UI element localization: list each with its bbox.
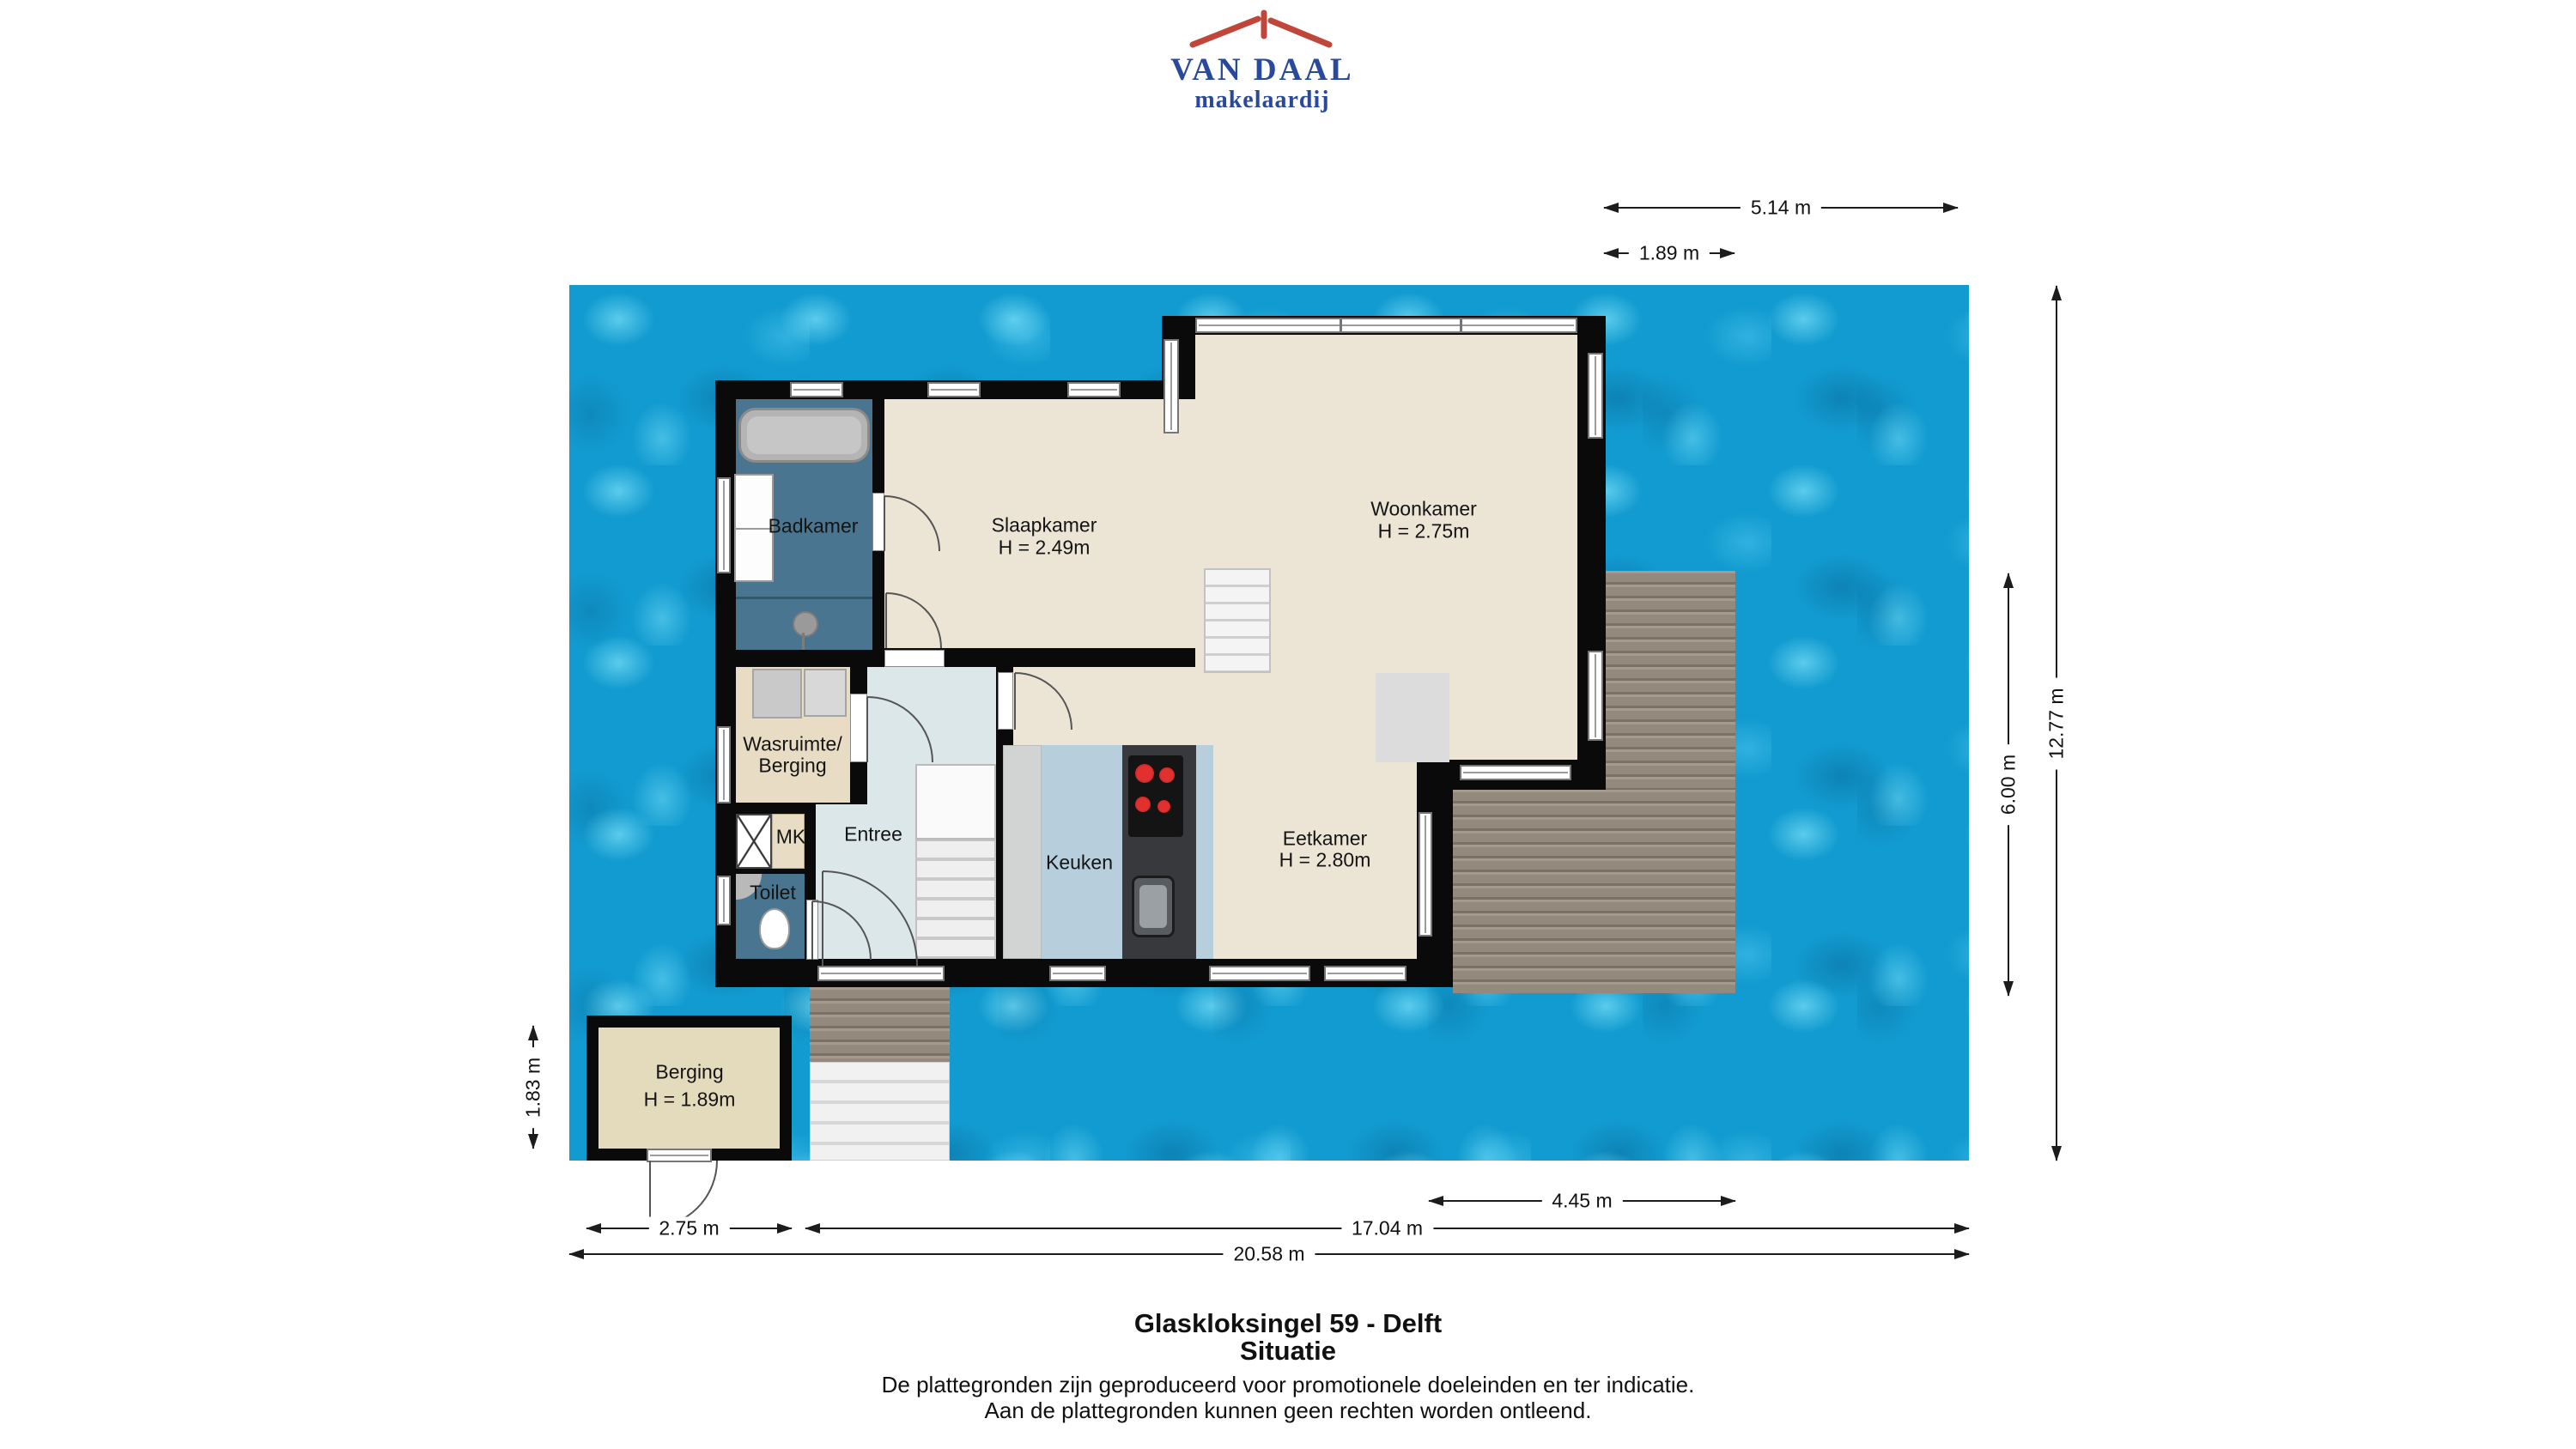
agency-logo: VAN DAAL makelaardij xyxy=(1133,9,1391,112)
stairs-entree-landing xyxy=(915,764,996,840)
burner xyxy=(1157,800,1170,813)
footer-title: Glaskloksingel 59 - Delft xyxy=(0,1308,2576,1339)
window-south-entree-door xyxy=(817,966,945,981)
dim-left-berging: 1.83 m xyxy=(532,1026,534,1149)
door-slaapkamer xyxy=(884,650,945,667)
label-slaapkamer: Slaapkamer xyxy=(992,514,1097,536)
bathtub-basin xyxy=(747,416,861,454)
window-southeast xyxy=(1460,765,1571,780)
shower-stem xyxy=(802,633,805,650)
label-berging: Berging xyxy=(655,1061,723,1082)
label-woonkamer: Woonkamer xyxy=(1370,498,1477,519)
bathtub xyxy=(738,408,870,463)
window-top-2 xyxy=(927,382,981,397)
label-badkamer: Badkamer xyxy=(769,515,859,537)
floorplan-page: VAN DAAL makelaardij xyxy=(0,0,2576,1449)
roof-icon xyxy=(1189,9,1335,50)
logo-title: VAN DAAL xyxy=(1133,54,1391,88)
dim-right-total: 12.77 m xyxy=(2056,286,2057,1161)
dim-bottom-total-label: 20.58 m xyxy=(1223,1243,1315,1266)
dim-top-width: 5.14 m xyxy=(1604,207,1958,209)
dim-top-width-label: 5.14 m xyxy=(1741,197,1821,220)
dryer-icon xyxy=(804,669,847,717)
door-toilet xyxy=(806,900,818,960)
window-left-wasruimte xyxy=(717,726,731,803)
window-mullion-2 xyxy=(1460,318,1462,333)
dim-bottom-deck: 4.45 m xyxy=(1429,1200,1735,1202)
window-woonkamer-right-2 xyxy=(1588,651,1603,741)
burner xyxy=(1135,764,1154,783)
dim-left-berging-label: 1.83 m xyxy=(522,1046,545,1127)
door-keuken xyxy=(998,672,1013,730)
window-woonkamer-top xyxy=(1195,318,1577,333)
footer-disclaimer-2: Aan de plattegronden kunnen geen rechten… xyxy=(0,1397,2576,1424)
badkamer-divider-line xyxy=(736,597,872,599)
dining-north-floor xyxy=(1013,667,1213,745)
kitchen-counter xyxy=(1003,745,1042,959)
dim-right-deck-label: 6.00 m xyxy=(1997,744,2020,825)
berging-door xyxy=(647,1149,712,1162)
label-entree: Entree xyxy=(844,823,902,845)
label-eetkamer: Eetkamer xyxy=(1283,828,1367,849)
door-wasruimte xyxy=(850,694,867,762)
label-wasruimte-line1: Wasruimte/ xyxy=(743,733,841,755)
dim-right-total-label: 12.77 m xyxy=(2045,677,2069,769)
label-woonkamer-height: H = 2.75m xyxy=(1378,520,1470,542)
dim-top-width-small-label: 1.89 m xyxy=(1629,242,1710,265)
window-left-badkamer xyxy=(717,477,731,573)
mk-vent-box xyxy=(736,814,772,869)
stairs-entree xyxy=(915,840,996,959)
shower-drain-icon xyxy=(793,611,818,637)
burner xyxy=(1159,767,1175,783)
dim-bottom-berging-label: 2.75 m xyxy=(648,1217,729,1240)
window-south-eetkamer-1 xyxy=(1209,966,1310,981)
sink-basin xyxy=(1139,885,1167,928)
label-slaapkamer-height: H = 2.49m xyxy=(999,537,1091,558)
entrance-steps xyxy=(810,1062,950,1161)
dim-bottom-house-label: 17.04 m xyxy=(1341,1217,1433,1240)
window-south-eetkamer-2 xyxy=(1324,966,1406,981)
window-south-keuken xyxy=(1049,966,1106,981)
window-top-1 xyxy=(790,382,843,397)
footer-subtitle: Situatie xyxy=(0,1336,2576,1367)
washer-icon xyxy=(752,669,802,718)
label-mk: MK xyxy=(776,826,806,847)
entrance-deck xyxy=(810,987,950,1062)
window-top-3 xyxy=(1067,382,1121,397)
label-eetkamer-height: H = 2.80m xyxy=(1279,849,1371,870)
label-toilet: Toilet xyxy=(750,882,796,903)
step-landing xyxy=(1376,673,1449,762)
window-woonkamer-left xyxy=(1163,339,1179,433)
label-berging-height: H = 1.89m xyxy=(644,1088,736,1110)
label-wasruimte-line2: Berging xyxy=(758,755,826,776)
dim-bottom-deck-label: 4.45 m xyxy=(1541,1190,1622,1213)
toilet-bowl-icon xyxy=(759,908,790,949)
window-left-toilet xyxy=(717,876,731,925)
window-eetkamer-right xyxy=(1419,812,1432,937)
label-keuken: Keuken xyxy=(1046,852,1113,873)
dim-top-width-small: 1.89 m xyxy=(1604,252,1735,254)
door-badkamer xyxy=(872,493,884,551)
dim-bottom-total: 20.58 m xyxy=(569,1253,1969,1255)
dim-right-deck: 6.00 m xyxy=(2008,573,2009,996)
footer-disclaimer-1: De plattegronden zijn geproduceerd voor … xyxy=(0,1372,2576,1398)
window-mullion-1 xyxy=(1340,318,1342,333)
sink-icon xyxy=(1132,876,1175,937)
window-woonkamer-right-1 xyxy=(1588,353,1603,439)
burner xyxy=(1135,797,1151,812)
stairs-woonkamer xyxy=(1204,568,1271,673)
dim-bottom-berging: 2.75 m xyxy=(586,1228,792,1229)
terrace-deck-lower xyxy=(1453,790,1735,993)
cooktop-icon xyxy=(1128,755,1183,837)
logo-subtitle: makelaardij xyxy=(1133,88,1391,112)
dim-bottom-house: 17.04 m xyxy=(805,1228,1969,1229)
